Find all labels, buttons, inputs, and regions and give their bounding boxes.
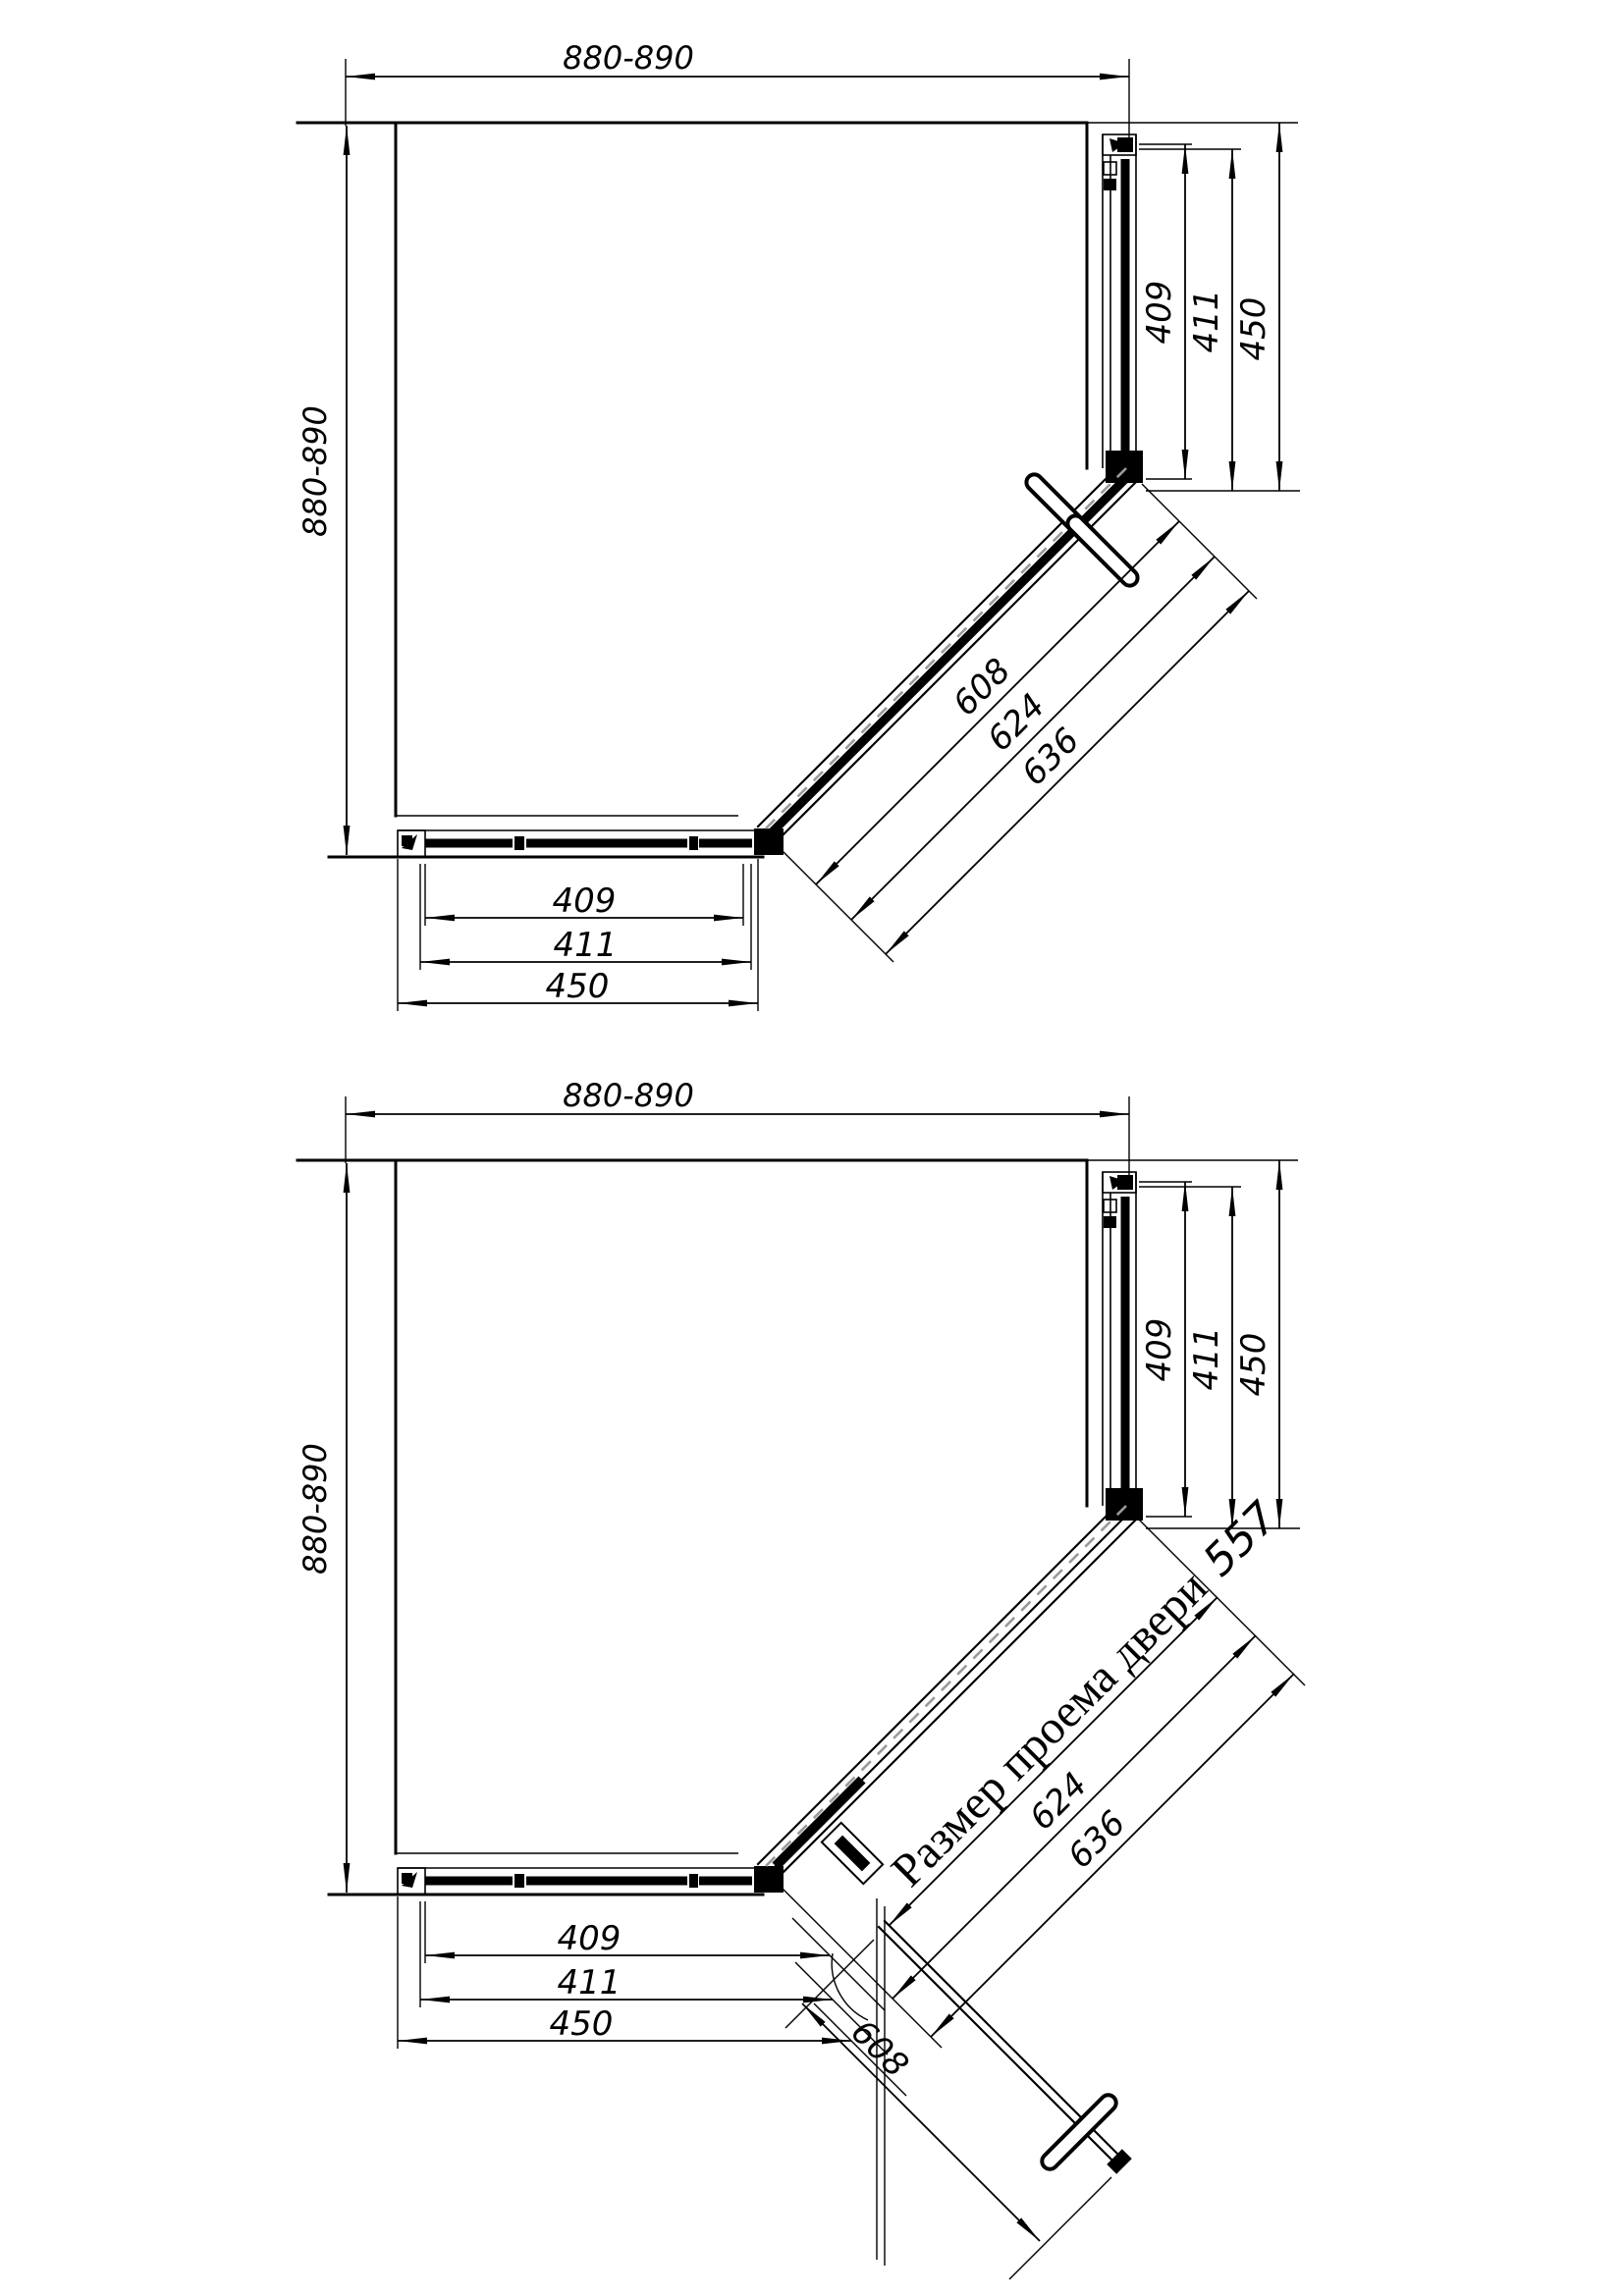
side-panel-right bbox=[1103, 134, 1143, 483]
view-door-open: 880-890 880-890 409 411 450 bbox=[297, 1077, 1305, 2279]
dim-label: 411 bbox=[558, 1963, 622, 2002]
technical-drawing-sheet: 880-890 880-890 409 411 450 bbox=[0, 0, 1623, 2296]
dim-label: 450 bbox=[550, 2004, 614, 2044]
dimensions-bottom-panel: 409 411 450 bbox=[398, 1896, 906, 2266]
dim-label: 409 bbox=[1140, 281, 1179, 345]
dim-label-top-width: 880-890 bbox=[563, 1077, 694, 1114]
sliding-door-open bbox=[879, 1921, 1132, 2174]
side-panel-bottom bbox=[398, 828, 784, 857]
dim-label: 409 bbox=[558, 1919, 622, 1958]
door-handle-bar-icon bbox=[1039, 2092, 1119, 2172]
shower-enclosure-plan-drawing: 880-890 880-890 409 411 450 bbox=[0, 0, 1623, 2296]
corner-connector bbox=[1106, 1488, 1143, 1521]
dimension-left-height: 880-890 bbox=[297, 1163, 347, 1893]
dimensions-bottom-panel: 409 411 450 bbox=[398, 859, 758, 1011]
dim-label-left-height: 880-890 bbox=[297, 405, 334, 537]
dimension-left-height: 880-890 bbox=[297, 126, 347, 855]
dim-label: 411 bbox=[554, 926, 618, 965]
dim-label: 450 bbox=[546, 967, 610, 1006]
dim-label: 450 bbox=[1234, 297, 1273, 361]
dimension-top-width: 880-890 bbox=[346, 1077, 1129, 1177]
dimension-top-width: 880-890 bbox=[346, 39, 1129, 139]
door-end-cap bbox=[1107, 2149, 1131, 2173]
dim-label: 450 bbox=[1234, 1333, 1273, 1397]
door-handle-bar-icon bbox=[1064, 512, 1141, 589]
dimensions-right-panel: 409 411 450 bbox=[1087, 1160, 1300, 1528]
dim-label: 608 bbox=[843, 2012, 916, 2085]
corner-connector bbox=[754, 1866, 784, 1893]
dim-label: 411 bbox=[1187, 290, 1226, 353]
dim-label: 409 bbox=[1140, 1318, 1179, 1382]
side-panel-right bbox=[1103, 1172, 1143, 1521]
dimensions-door-diagonal: 608 624 636 bbox=[779, 484, 1257, 962]
dim-label-top-width: 880-890 bbox=[563, 39, 694, 77]
wall-outline bbox=[298, 123, 1087, 857]
pivot-bracket bbox=[822, 1823, 883, 1884]
door-opening-value: 557 bbox=[1194, 1492, 1287, 1585]
dimensions-right-panel: 409 411 450 bbox=[1087, 123, 1300, 491]
door-opening-label: Размер проема двери bbox=[882, 1561, 1217, 1896]
dim-label: 411 bbox=[1187, 1327, 1226, 1391]
dimensions-door-opening: Размер проема двери 557 624 636 bbox=[776, 1492, 1305, 2048]
dim-label-left-height: 880-890 bbox=[297, 1443, 334, 1575]
view-door-closed: 880-890 880-890 409 411 450 bbox=[297, 39, 1300, 1011]
sliding-door-closed bbox=[758, 463, 1141, 843]
side-panel-bottom bbox=[398, 1866, 784, 1895]
dim-label: 409 bbox=[553, 881, 617, 921]
